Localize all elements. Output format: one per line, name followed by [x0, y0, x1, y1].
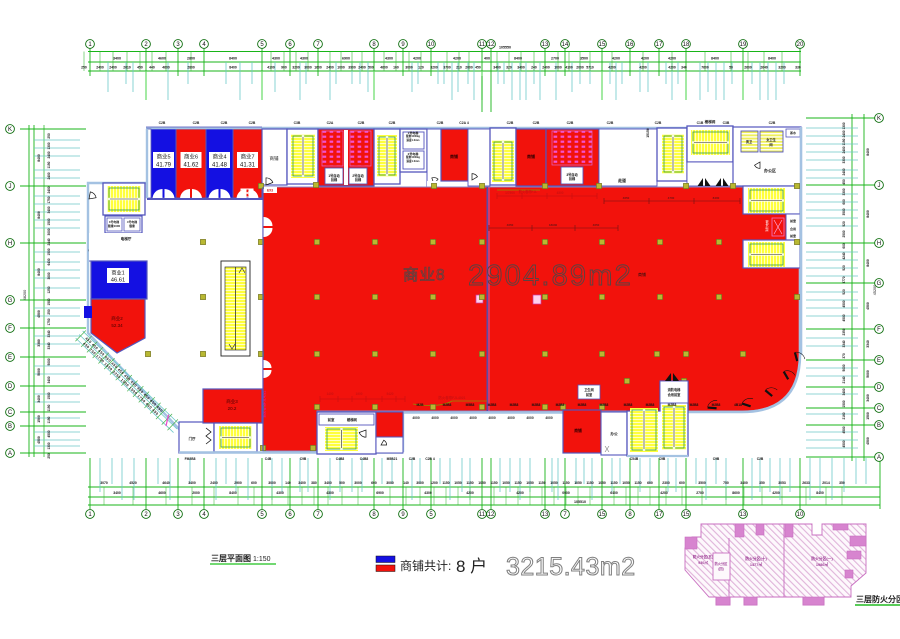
svg-text:C2B: C2B: [567, 121, 574, 125]
svg-text:1190: 1190: [47, 161, 51, 168]
svg-text:门厅: 门厅: [189, 436, 196, 441]
svg-text:C2A 4: C2A 4: [459, 121, 469, 125]
svg-text:600: 600: [371, 481, 377, 485]
svg-text:450: 450: [137, 66, 143, 70]
svg-text:12: 12: [488, 42, 495, 48]
svg-text:防火卷帘FJL: 防火卷帘FJL: [519, 189, 537, 194]
svg-text:2400: 2400: [47, 186, 51, 193]
svg-text:M2B8: M2B8: [600, 403, 609, 407]
svg-text:4500: 4500: [842, 440, 846, 447]
svg-text:1000: 1000: [554, 66, 562, 70]
svg-text:320: 320: [506, 66, 512, 70]
svg-text:48200: 48200: [23, 290, 27, 301]
svg-text:520: 520: [842, 265, 846, 271]
svg-text:速度1.0m/s: 速度1.0m/s: [406, 159, 420, 163]
svg-text:女卫生: 女卫生: [766, 137, 776, 142]
svg-text:三层平面图: 三层平面图: [211, 554, 251, 563]
svg-text:600: 600: [647, 481, 653, 485]
svg-text:4600: 4600: [162, 66, 170, 70]
svg-text:2640: 2640: [760, 66, 768, 70]
svg-text:600: 600: [842, 199, 846, 205]
svg-text:3400: 3400: [37, 395, 41, 403]
svg-text:男卫: 男卫: [746, 139, 753, 144]
svg-text:载重1000: 载重1000: [108, 223, 121, 228]
svg-text:350: 350: [839, 481, 845, 485]
svg-text:J: J: [9, 184, 12, 190]
svg-text:15: 15: [599, 512, 606, 518]
svg-text:1050: 1050: [502, 481, 510, 485]
svg-text:4600: 4600: [158, 491, 166, 495]
svg-text:楼梯间: 楼梯间: [347, 417, 358, 422]
svg-text:8600: 8600: [732, 491, 740, 495]
svg-text:C2B: C2B: [769, 121, 776, 125]
svg-text:50: 50: [729, 66, 733, 70]
svg-text:合用: 合用: [790, 226, 796, 231]
svg-text:4200: 4200: [466, 491, 474, 495]
svg-text:M2B8: M2B8: [578, 403, 587, 407]
svg-text:前室: 前室: [790, 218, 796, 223]
svg-text:G: G: [8, 298, 13, 304]
svg-text:250: 250: [47, 309, 51, 315]
svg-text:2400: 2400: [109, 66, 117, 70]
svg-text:M5B21: M5B21: [387, 457, 398, 461]
svg-text:160: 160: [393, 66, 399, 70]
svg-text:1:150: 1:150: [253, 556, 271, 563]
svg-text:C9B: C9B: [659, 457, 666, 461]
svg-text:8400: 8400: [229, 491, 237, 495]
svg-text:2400: 2400: [47, 151, 51, 158]
svg-text:750: 750: [723, 481, 729, 485]
svg-text:1150: 1150: [562, 481, 569, 485]
svg-text:105510: 105510: [574, 500, 586, 504]
svg-text:2350: 2350: [842, 328, 846, 335]
svg-text:17: 17: [656, 42, 663, 48]
svg-text:1190: 1190: [47, 416, 51, 423]
svg-text:4600: 4600: [380, 66, 388, 70]
svg-text:340: 340: [681, 66, 687, 70]
svg-text:C2B: C2B: [437, 121, 444, 125]
svg-text:A: A: [8, 451, 12, 457]
svg-text:4300: 4300: [272, 57, 280, 61]
svg-text:4000: 4000: [545, 416, 553, 420]
svg-text:3000: 3000: [47, 228, 51, 235]
svg-text:1986㎡: 1986㎡: [816, 562, 828, 567]
svg-text:C2B: C2B: [221, 121, 228, 125]
svg-text:450: 450: [842, 179, 846, 185]
svg-text:1500: 1500: [842, 400, 846, 407]
svg-text:K: K: [877, 116, 881, 122]
svg-text:M2B8: M2B8: [443, 403, 452, 407]
svg-text:11: 11: [479, 512, 486, 518]
svg-text:J: J: [878, 183, 881, 189]
svg-text:B: B: [877, 423, 881, 429]
svg-text:10: 10: [797, 512, 804, 518]
svg-text:1000: 1000: [337, 66, 345, 70]
svg-text:商业3: 商业3: [226, 398, 238, 405]
svg-text:4200: 4200: [641, 57, 649, 61]
svg-text:2400: 2400: [358, 66, 366, 70]
svg-text:3000: 3000: [47, 272, 51, 279]
svg-text:商业8: 商业8: [403, 266, 446, 284]
svg-text:2400: 2400: [842, 168, 846, 175]
svg-text:13: 13: [740, 512, 747, 518]
svg-text:2000: 2000: [576, 66, 584, 70]
svg-text:1500: 1500: [47, 392, 51, 399]
svg-text:1150: 1150: [466, 481, 473, 485]
svg-text:4600: 4600: [158, 57, 166, 61]
svg-text:2400: 2400: [842, 146, 846, 153]
svg-text:C2B: C2B: [607, 121, 614, 125]
svg-text:3200: 3200: [430, 66, 438, 70]
svg-text:2400: 2400: [96, 66, 104, 70]
svg-text:4300: 4300: [385, 57, 393, 61]
svg-text:3770: 3770: [842, 276, 846, 283]
svg-text:H: H: [877, 241, 881, 247]
svg-text:D: D: [877, 385, 882, 391]
svg-text:C2A: C2A: [327, 121, 334, 125]
svg-text:4000: 4000: [507, 416, 515, 420]
svg-text:41.48: 41.48: [212, 163, 228, 169]
svg-text:250: 250: [47, 133, 51, 139]
svg-text:4300: 4300: [424, 491, 432, 495]
svg-text:K: K: [8, 127, 12, 133]
svg-text:前室: 前室: [790, 233, 796, 238]
svg-text:1500: 1500: [47, 298, 51, 305]
svg-text:41.79: 41.79: [156, 163, 172, 169]
svg-text:三层防火分区示意图: 三层防火分区示意图: [856, 594, 900, 604]
svg-text:3400: 3400: [866, 394, 870, 402]
svg-text:4500: 4500: [47, 430, 51, 437]
svg-text:3400: 3400: [47, 206, 51, 213]
svg-text:4000: 4000: [431, 416, 439, 420]
svg-text:防火卷帘FJL4021: 防火卷帘FJL4021: [438, 395, 465, 400]
svg-text:C3B: C3B: [294, 121, 301, 125]
svg-text:商业1: 商业1: [111, 269, 124, 277]
svg-text:1150: 1150: [634, 481, 641, 485]
svg-text:商铺: 商铺: [450, 153, 458, 159]
svg-text:M5B8: M5B8: [466, 403, 475, 407]
svg-text:19: 19: [740, 42, 747, 48]
svg-text:4000: 4000: [488, 416, 496, 420]
svg-text:C2B: C2B: [358, 121, 365, 125]
svg-text:M2B: M2B: [417, 403, 425, 407]
svg-text:52.34: 52.34: [111, 323, 123, 328]
svg-text:商铺: 商铺: [527, 153, 535, 159]
svg-text:46.61: 46.61: [111, 278, 126, 284]
svg-text:C2B: C2B: [159, 121, 166, 125]
svg-text:商铺: 商铺: [270, 155, 279, 162]
svg-text:8400: 8400: [866, 210, 870, 218]
svg-text:4200: 4200: [608, 66, 616, 70]
svg-text:M2B8: M2B8: [690, 403, 699, 407]
svg-text:G: G: [877, 281, 882, 287]
svg-text:C4B8: C4B8: [360, 457, 369, 461]
svg-text:8400: 8400: [711, 57, 719, 61]
svg-text:M2B8: M2B8: [488, 403, 497, 407]
svg-text:11: 11: [479, 42, 486, 48]
svg-text:4500: 4500: [842, 426, 846, 433]
svg-text:载重1000kg: 载重1000kg: [406, 155, 420, 159]
svg-text:15: 15: [599, 42, 606, 48]
svg-text:2900: 2900: [234, 481, 242, 485]
svg-text:3000: 3000: [268, 481, 276, 485]
svg-text:办公: 办公: [609, 431, 618, 436]
svg-text:M2B8: M2B8: [532, 403, 541, 407]
svg-text:1750: 1750: [47, 318, 51, 325]
svg-text:6400: 6400: [610, 491, 618, 495]
svg-text:FM2B8: FM2B8: [185, 457, 196, 461]
svg-text:1050: 1050: [526, 481, 534, 485]
svg-text:5000: 5000: [47, 358, 51, 365]
svg-text:3400: 3400: [517, 66, 525, 70]
svg-text:900: 900: [281, 66, 287, 70]
svg-text:140: 140: [403, 481, 409, 485]
svg-text:1050: 1050: [550, 481, 558, 485]
svg-text:3300: 3300: [842, 156, 846, 163]
svg-text:1300: 1300: [47, 142, 51, 149]
svg-text:合用前室: 合用前室: [668, 392, 682, 397]
svg-text:12: 12: [488, 512, 495, 518]
svg-text:2400: 2400: [210, 481, 218, 485]
svg-text:3500: 3500: [580, 57, 588, 61]
svg-text:13: 13: [542, 42, 549, 48]
svg-text:2904.89m2: 2904.89m2: [468, 260, 633, 292]
svg-text:1600: 1600: [314, 66, 322, 70]
svg-text:4200: 4200: [612, 57, 620, 61]
svg-text:1500: 1500: [37, 415, 41, 423]
svg-text:2440: 2440: [47, 238, 51, 245]
svg-text:3000: 3000: [304, 66, 312, 70]
svg-text:1900: 1900: [355, 392, 362, 396]
svg-text:10: 10: [428, 42, 435, 48]
svg-text:41.31: 41.31: [240, 163, 256, 169]
svg-text:4700: 4700: [668, 196, 675, 200]
svg-text:M2B8: M2B8: [510, 403, 519, 407]
svg-text:B: B: [8, 424, 12, 430]
svg-text:H: H: [8, 241, 12, 247]
svg-text:3340: 3340: [866, 340, 870, 348]
svg-text:D: D: [8, 384, 13, 390]
svg-text:3400: 3400: [113, 57, 121, 61]
svg-text:防火分区: 防火分区: [715, 561, 729, 566]
svg-text:4650: 4650: [593, 223, 600, 227]
svg-text:1150: 1150: [490, 481, 497, 485]
svg-text:办公区: 办公区: [764, 167, 776, 173]
svg-text:1050: 1050: [478, 481, 486, 485]
svg-text:3000: 3000: [354, 481, 362, 485]
svg-text:1150: 1150: [442, 481, 449, 485]
svg-text:3900: 3900: [348, 66, 356, 70]
svg-text:20: 20: [797, 42, 804, 48]
svg-text:2140: 2140: [842, 376, 846, 383]
svg-text:0000: 0000: [562, 491, 570, 495]
svg-text:1190: 1190: [842, 138, 846, 145]
svg-text:(四): (四): [718, 566, 723, 571]
svg-text:3340: 3340: [47, 330, 51, 337]
svg-text:3053: 3053: [778, 481, 786, 485]
svg-text:3300: 3300: [842, 188, 846, 195]
svg-text:1150: 1150: [586, 481, 593, 485]
svg-text:1500: 1500: [866, 412, 870, 420]
svg-text:4200: 4200: [413, 57, 421, 61]
svg-text:C2B: C2B: [193, 121, 200, 125]
svg-text:1050: 1050: [622, 481, 630, 485]
svg-text:C9B: C9B: [713, 457, 720, 461]
svg-text:400: 400: [484, 57, 490, 61]
svg-text:105550: 105550: [499, 46, 511, 50]
svg-text:3000: 3000: [405, 66, 413, 70]
svg-text:4500: 4500: [37, 310, 41, 318]
svg-text:370: 370: [842, 353, 846, 359]
svg-text:4200: 4200: [516, 491, 524, 495]
svg-text:1050: 1050: [598, 481, 606, 485]
svg-text:C9B: C9B: [300, 457, 307, 461]
svg-text:4300: 4300: [300, 57, 308, 61]
svg-text:6430: 6430: [47, 258, 51, 265]
svg-text:3700: 3700: [443, 66, 451, 70]
svg-text:1050: 1050: [574, 481, 582, 485]
svg-text:3070: 3070: [100, 481, 108, 485]
svg-text:17: 17: [656, 512, 663, 518]
svg-text:EX3: EX3: [267, 189, 273, 193]
svg-text:3400: 3400: [113, 491, 121, 495]
svg-text:4100: 4100: [267, 66, 275, 70]
svg-text:电梯厅: 电梯厅: [121, 236, 132, 241]
svg-text:2400: 2400: [542, 66, 550, 70]
svg-text:15150: 15150: [646, 128, 650, 138]
svg-text:1300: 1300: [47, 442, 51, 449]
svg-text:C2B 4: C2B 4: [425, 457, 435, 461]
svg-text:防火分区(一): 防火分区(一): [811, 556, 833, 561]
svg-text:1500: 1500: [47, 248, 51, 255]
svg-text:2800: 2800: [187, 66, 195, 70]
svg-text:商业7: 商业7: [240, 153, 254, 161]
svg-text:120: 120: [418, 66, 424, 70]
svg-text:3400: 3400: [493, 66, 501, 70]
svg-text:1500: 1500: [47, 218, 51, 225]
svg-text:41.62: 41.62: [183, 163, 199, 169]
svg-text:商铺: 商铺: [574, 428, 582, 433]
svg-text:4300: 4300: [276, 491, 284, 495]
svg-text:3500: 3500: [842, 208, 846, 215]
svg-text:3400: 3400: [47, 376, 51, 383]
svg-text:前室: 前室: [328, 417, 335, 422]
svg-text:1750: 1750: [47, 196, 51, 203]
svg-text:8400: 8400: [229, 66, 237, 70]
svg-text:4650: 4650: [507, 223, 514, 227]
svg-text:E: E: [877, 358, 881, 364]
svg-text:M2B8: M2B8: [646, 403, 655, 407]
svg-text:3400: 3400: [842, 388, 846, 395]
svg-text:350: 350: [759, 481, 765, 485]
svg-text:6900: 6900: [342, 57, 350, 61]
svg-text:1400: 1400: [326, 392, 333, 396]
svg-text:C: C: [877, 406, 882, 412]
svg-text:20.2: 20.2: [228, 406, 237, 411]
svg-text:8400: 8400: [37, 268, 41, 276]
svg-text:2500: 2500: [842, 230, 846, 237]
svg-text:4200: 4200: [668, 66, 676, 70]
svg-text:载重1000kg: 载重1000kg: [406, 134, 420, 138]
svg-text:3380: 3380: [37, 339, 41, 347]
svg-text:商业6: 商业6: [184, 153, 198, 161]
svg-text:18: 18: [683, 42, 690, 48]
svg-text:C3B: C3B: [723, 121, 730, 125]
svg-text:间: 间: [769, 142, 772, 147]
svg-text:4500: 4500: [842, 314, 846, 321]
svg-text:3215.43m2: 3215.43m2: [506, 553, 636, 581]
svg-text:1150: 1150: [610, 481, 617, 485]
svg-text:520: 520: [842, 289, 846, 295]
svg-text:140: 140: [285, 481, 291, 485]
svg-text:2633: 2633: [802, 481, 810, 485]
svg-text:1150: 1150: [514, 481, 521, 485]
svg-text:4500: 4500: [866, 437, 870, 445]
svg-text:茶水: 茶水: [789, 130, 797, 135]
svg-text:8 户: 8 户: [456, 557, 487, 576]
svg-text:18930: 18930: [549, 223, 558, 227]
svg-text:2600: 2600: [744, 66, 752, 70]
svg-text:4000: 4000: [469, 416, 477, 420]
svg-text:5000: 5000: [37, 368, 41, 376]
svg-text:330: 330: [795, 66, 801, 70]
svg-text:C54B: C54B: [630, 457, 639, 461]
svg-text:2700: 2700: [551, 57, 559, 61]
svg-text:A: A: [877, 455, 881, 461]
svg-text:4640: 4640: [162, 481, 170, 485]
svg-text:8400: 8400: [713, 196, 720, 200]
svg-text:4200: 4200: [639, 66, 647, 70]
svg-text:1200: 1200: [430, 481, 438, 485]
svg-text:250: 250: [47, 453, 51, 459]
svg-text:1300: 1300: [842, 122, 846, 129]
svg-text:走道: 走道: [617, 177, 626, 183]
svg-text:3000: 3000: [386, 481, 394, 485]
svg-text:M2B8: M2B8: [668, 403, 677, 407]
svg-text:14: 14: [562, 42, 569, 48]
svg-text:3400: 3400: [324, 481, 332, 485]
svg-text:4500: 4500: [866, 302, 870, 310]
svg-text:2700: 2700: [696, 491, 704, 495]
svg-text:3000: 3000: [416, 481, 424, 485]
svg-text:4200: 4200: [772, 491, 780, 495]
svg-text:380: 380: [311, 481, 317, 485]
svg-text:8400: 8400: [866, 259, 870, 267]
svg-text:2000: 2000: [192, 491, 200, 495]
svg-text:商业2: 商业2: [111, 315, 123, 322]
svg-text:商业5: 商业5: [156, 153, 170, 161]
svg-text:3500: 3500: [698, 481, 706, 485]
svg-text:前室: 前室: [586, 392, 593, 397]
svg-text:扶梯: 扶梯: [569, 176, 576, 181]
svg-text:4520: 4520: [129, 481, 137, 485]
svg-text:商铺: 商铺: [638, 271, 646, 277]
svg-text:520: 520: [842, 221, 846, 227]
svg-text:8400: 8400: [866, 148, 870, 156]
svg-text:消防电梯: 消防电梯: [668, 387, 682, 392]
svg-text:250: 250: [81, 66, 87, 70]
svg-text:500: 500: [339, 481, 345, 485]
svg-text:M2B8: M2B8: [556, 403, 565, 407]
svg-text:240: 240: [531, 66, 537, 70]
svg-text:7600: 7600: [701, 66, 709, 70]
svg-text:M2B8: M2B8: [624, 403, 633, 407]
svg-text:500: 500: [368, 66, 374, 70]
svg-text:440: 440: [149, 66, 155, 70]
svg-text:3200: 3200: [292, 66, 300, 70]
svg-text:C2B: C2B: [757, 457, 764, 461]
svg-text:6900: 6900: [376, 491, 384, 495]
